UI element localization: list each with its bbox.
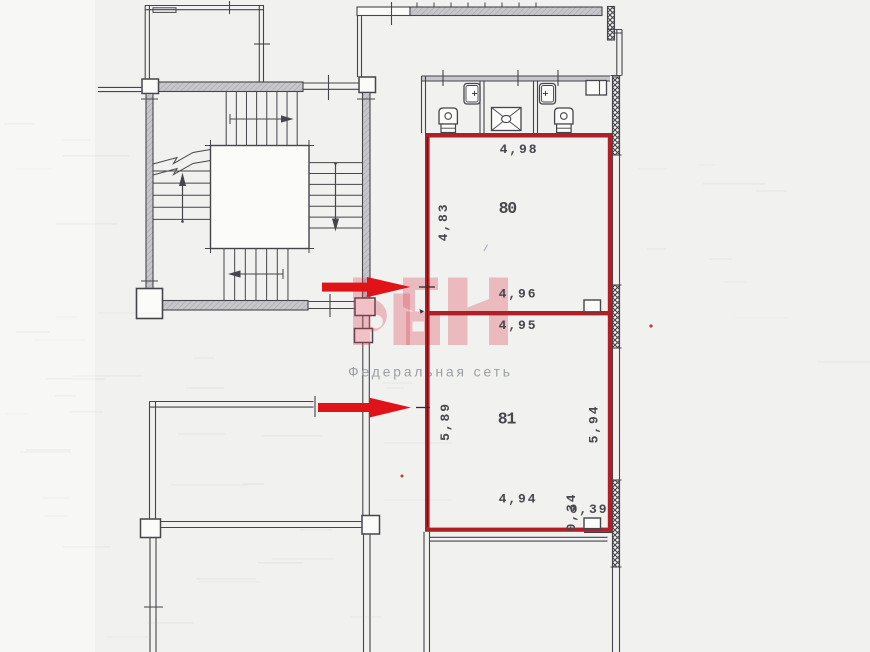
svg-text:5,89: 5,89: [438, 402, 453, 441]
svg-text:4,98: 4,98: [500, 142, 539, 157]
svg-text:Федеральная сеть: Федеральная сеть: [348, 365, 513, 380]
svg-text:0,39: 0,39: [570, 502, 609, 517]
svg-text:5,94: 5,94: [587, 405, 602, 444]
svg-text:80: 80: [499, 199, 517, 218]
svg-text:4,96: 4,96: [499, 287, 538, 302]
svg-text:4,94: 4,94: [499, 492, 538, 507]
svg-text:81: 81: [498, 410, 517, 429]
svg-text:4,83: 4,83: [436, 203, 451, 242]
svg-text:4,95: 4,95: [499, 318, 538, 333]
